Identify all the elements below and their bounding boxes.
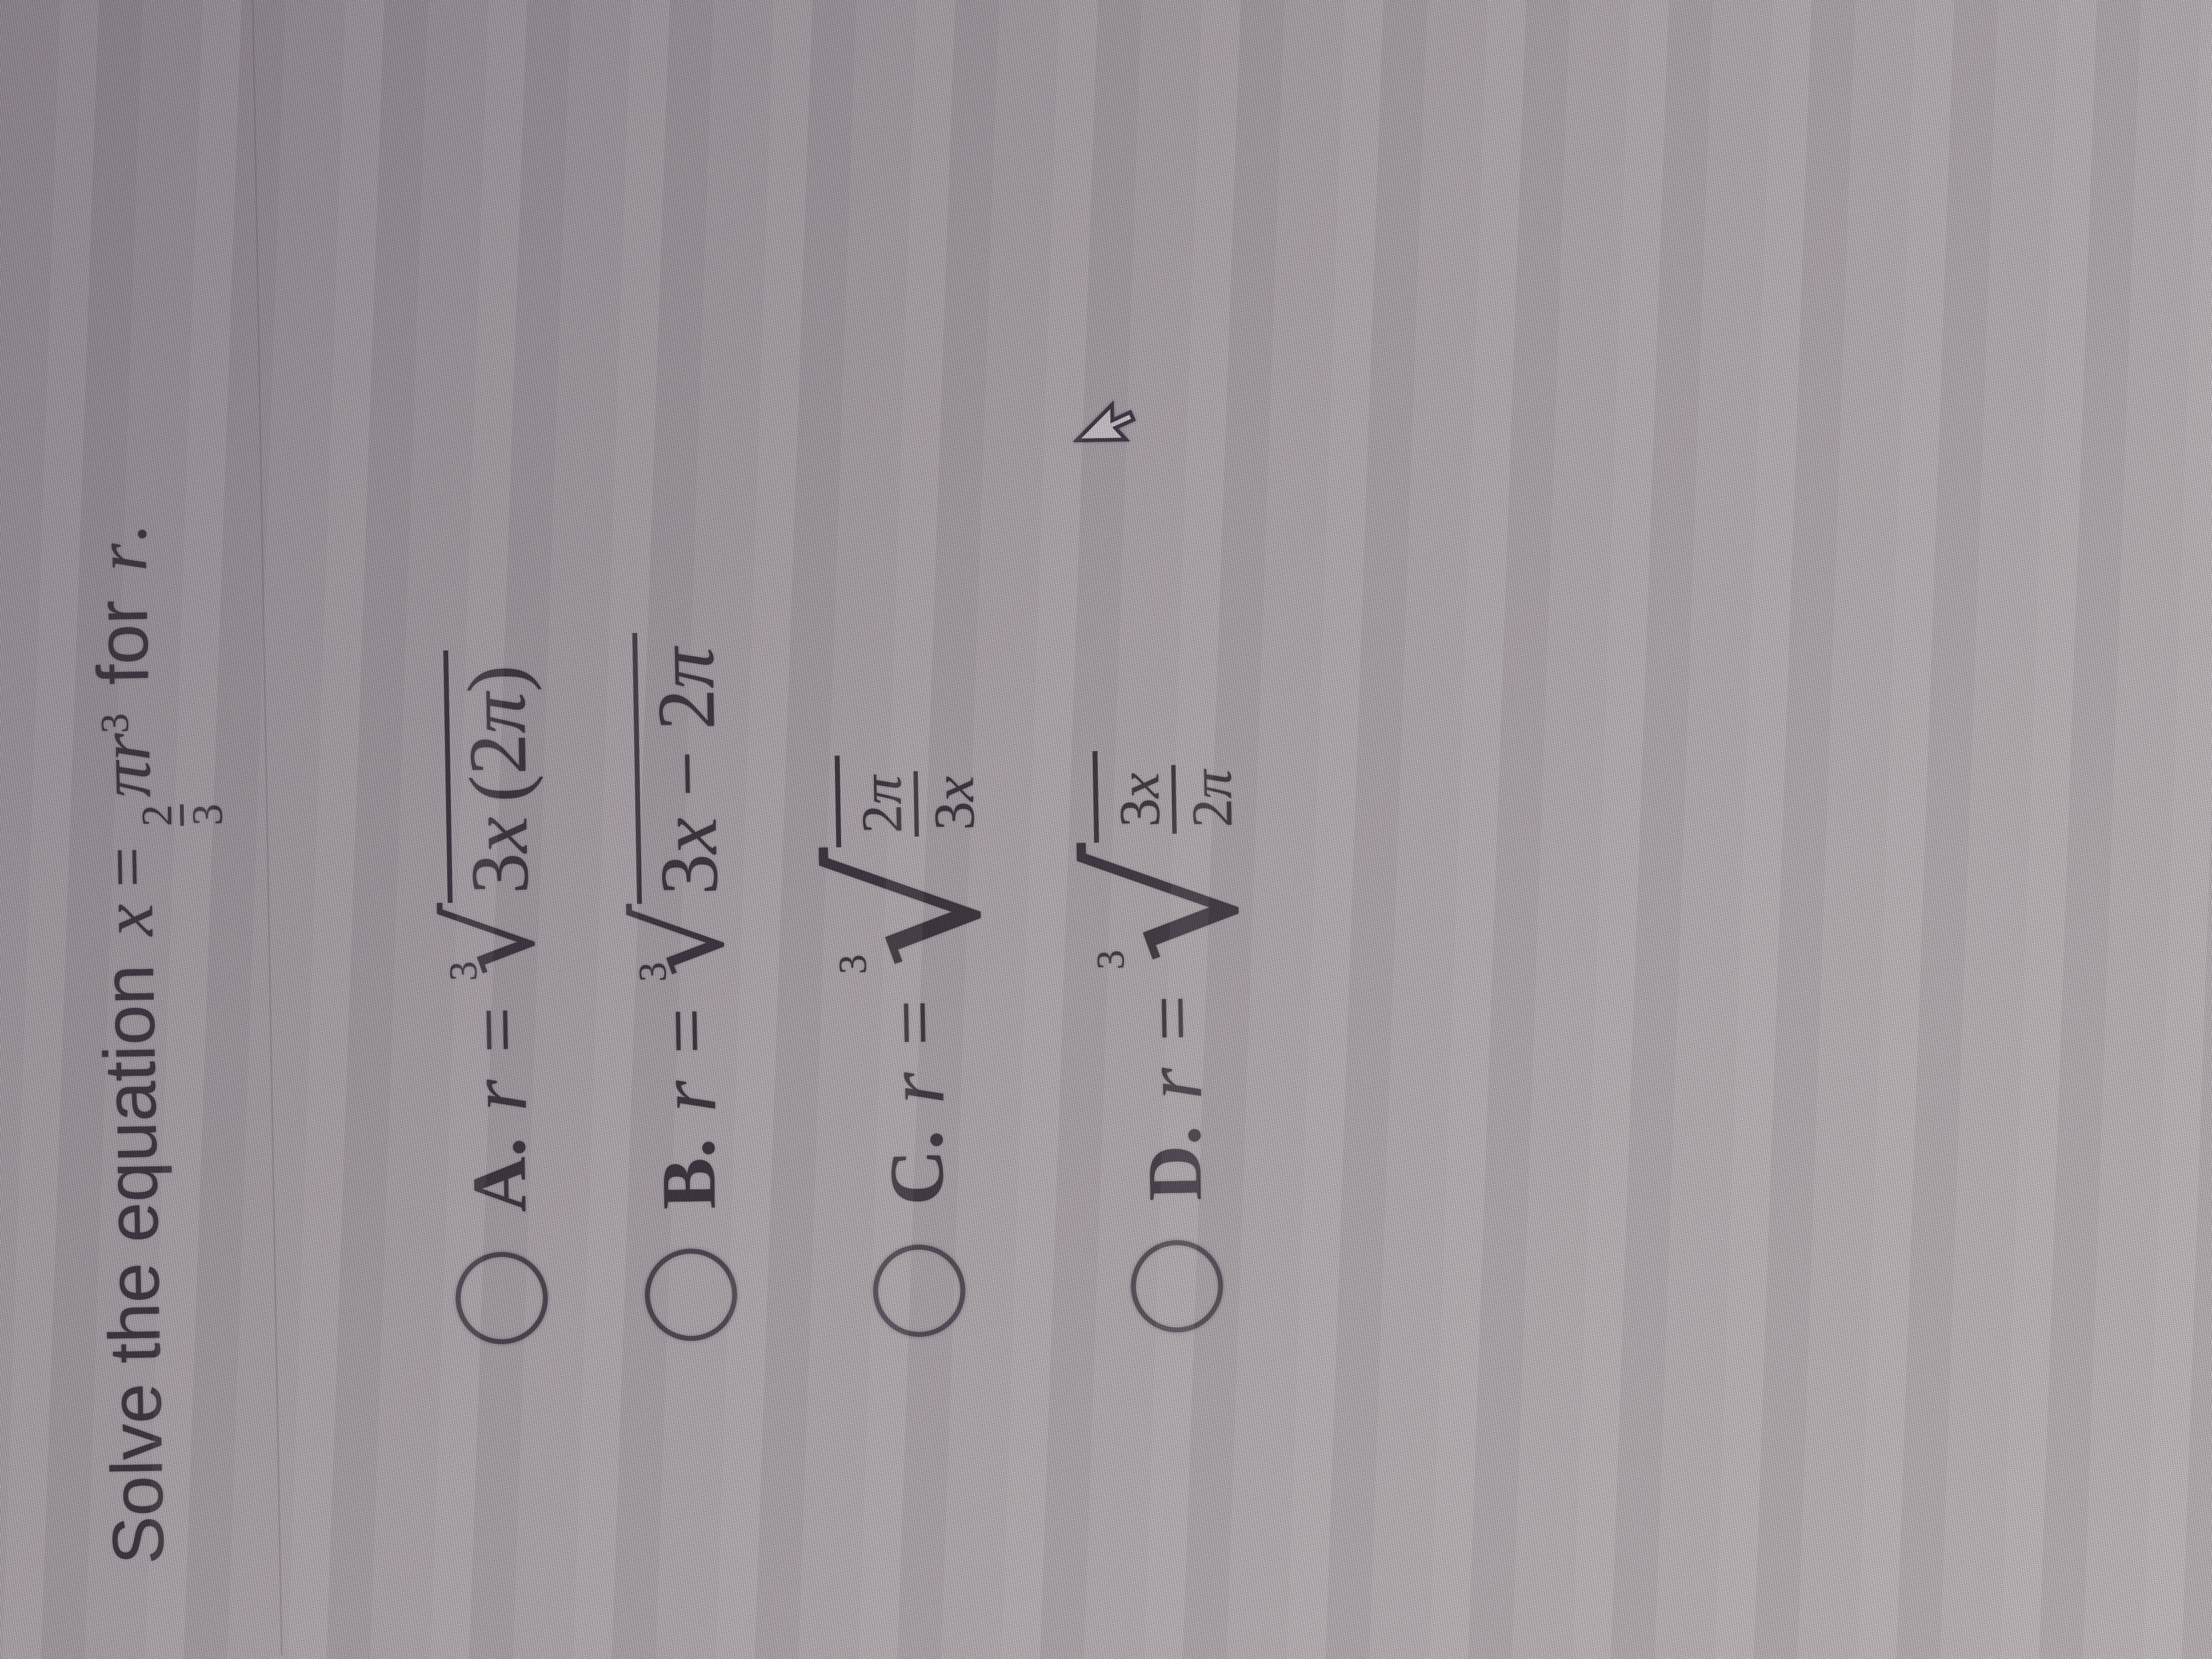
option-formula-d: r = 3 √ 3x 2π <box>1092 748 1249 1101</box>
period: . <box>81 524 162 544</box>
radio-option-d[interactable] <box>1130 1239 1224 1333</box>
fraction-numerator: 2π <box>849 770 915 839</box>
root-index: 3 <box>633 962 673 982</box>
option-formula-a: r = 3 √ 3x(2π) <box>443 649 545 1112</box>
variable-x: x <box>921 776 986 803</box>
coefficient: 3 <box>648 853 731 896</box>
close-paren: ) <box>455 664 538 693</box>
radio-option-c[interactable] <box>872 1244 966 1338</box>
radicand: 3x 2π <box>1092 748 1244 843</box>
variable-x: x <box>1107 772 1171 799</box>
question-text: Solve the equationx=23πr3forr. <box>68 523 244 1565</box>
option-label-d: D. <box>1136 1125 1214 1201</box>
root-index: 3 <box>1091 950 1131 970</box>
math-variable-x: x <box>87 904 168 937</box>
variable-r: r <box>874 1071 957 1105</box>
fraction: 3x 2π <box>1107 764 1244 834</box>
fraction-denominator: 3 <box>180 803 231 826</box>
cube-root: 3 √ 2π 3x <box>834 753 989 975</box>
fraction-denominator: 2π <box>1171 764 1244 833</box>
coefficient: 3 <box>458 853 541 895</box>
numerator-coefficient: 3 <box>1107 798 1172 828</box>
denominator-coefficient: 2 <box>1180 798 1244 828</box>
variable-r: r <box>456 1079 539 1112</box>
variable-r: r <box>1132 1067 1215 1101</box>
pi-symbol: π <box>1179 769 1244 799</box>
equals-sign: = <box>455 1006 538 1054</box>
radical-sign-icon: √ <box>1098 840 1239 966</box>
numerator-coefficient: 2 <box>849 804 914 834</box>
coefficient-2: 2 <box>645 688 727 731</box>
cube-root: 3 √ 3x 2π <box>1092 748 1246 970</box>
pi-symbol: π <box>455 692 538 735</box>
root-index: 3 <box>833 954 873 974</box>
coefficient-2: 2 <box>456 733 539 776</box>
equals-sign: = <box>873 999 956 1047</box>
option-formula-c: r = 3 √ 2π 3x <box>834 753 991 1106</box>
option-row-d[interactable]: D. r = 3 √ 3x 2π <box>1092 748 1253 1334</box>
equals-sign: = <box>1131 994 1214 1042</box>
cube-root: 3 √ 3x − 2π <box>633 631 732 982</box>
equals-sign: = <box>645 1007 727 1054</box>
option-label-c: C. <box>878 1130 956 1206</box>
quiz-page: Solve the equationx=23πr3forr. A. r = 3 … <box>0 0 2212 1659</box>
option-row-c[interactable]: C. r = 3 √ 2π 3x <box>834 753 995 1339</box>
fraction-denominator: 3x <box>913 770 987 837</box>
radical-sign-icon: √ <box>840 845 981 970</box>
radicand: 2π 3x <box>834 753 986 848</box>
fraction-two-thirds: 23 <box>134 803 231 827</box>
exponent-3: 3 <box>92 713 137 734</box>
solve-for-variable: r <box>81 543 162 572</box>
variable-r: r <box>646 1080 729 1113</box>
pi-symbol: π <box>84 760 166 798</box>
question-suffix-word: for <box>81 600 163 686</box>
photographed-screen: Solve the equationx=23πr3forr. A. r = 3 … <box>0 0 2212 1659</box>
radicand: 3x(2π) <box>443 649 541 903</box>
variable-x: x <box>458 816 540 854</box>
minus-sign: − <box>646 729 730 818</box>
question-prefix: Solve the equation <box>88 964 179 1565</box>
pi-symbol: π <box>644 647 727 690</box>
option-label-b: B. <box>650 1138 727 1210</box>
pi-symbol: π <box>849 775 913 805</box>
radicand: 3x − 2π <box>633 631 731 904</box>
fraction-numerator: 3x <box>1107 767 1172 833</box>
variable-x: x <box>647 817 730 855</box>
option-row-a[interactable]: A. r = 3 √ 3x(2π) <box>443 649 549 1345</box>
option-label-a: A. <box>460 1137 538 1214</box>
fraction-numerator: 2 <box>134 804 180 827</box>
cube-root: 3 √ 3x(2π) <box>443 649 543 981</box>
fraction: 2π 3x <box>849 769 986 839</box>
open-paren: ( <box>457 774 540 803</box>
card-edge-line <box>252 0 283 1655</box>
option-formula-b: r = 3 √ 3x − 2π <box>633 631 735 1113</box>
denominator-coefficient: 3 <box>922 801 986 831</box>
radio-option-b[interactable] <box>644 1248 738 1342</box>
option-row-b[interactable]: B. r = 3 √ 3x − 2π <box>633 631 739 1341</box>
equals-sign: = <box>86 846 167 888</box>
radio-option-a[interactable] <box>455 1251 549 1345</box>
math-variable-r: r <box>84 732 166 762</box>
root-index: 3 <box>443 961 483 981</box>
mouse-cursor-icon <box>1073 391 1144 445</box>
